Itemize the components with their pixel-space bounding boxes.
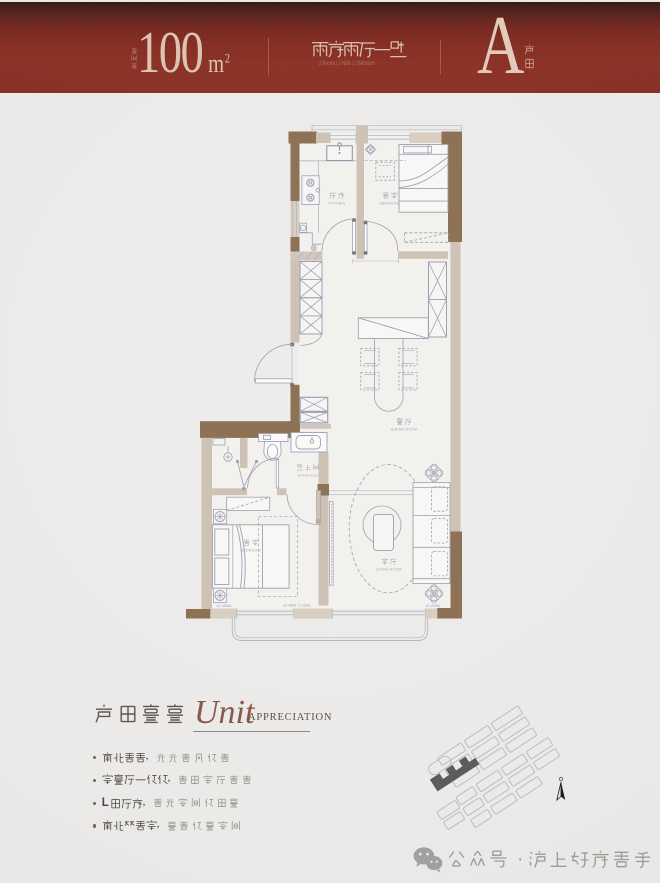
svg-text:LIVING ROOM: LIVING ROOM [376,568,402,572]
svg-text:KITCHEN: KITCHEN [329,202,346,206]
svg-text:BATHROOM: BATHROOM [298,473,318,477]
svg-text:±C-0808 C-2126±: ±C-0808 C-2126± [283,604,311,608]
svg-text:±C-0826±: ±C-0826± [217,604,232,608]
svg-text:±C-2326±: ±C-2326± [426,604,441,608]
svg-text:BEDROOM: BEDROOM [380,202,399,206]
svg-text:BEDROOM: BEDROOM [241,549,260,553]
svg-text:DINING ROOM: DINING ROOM [391,428,417,432]
